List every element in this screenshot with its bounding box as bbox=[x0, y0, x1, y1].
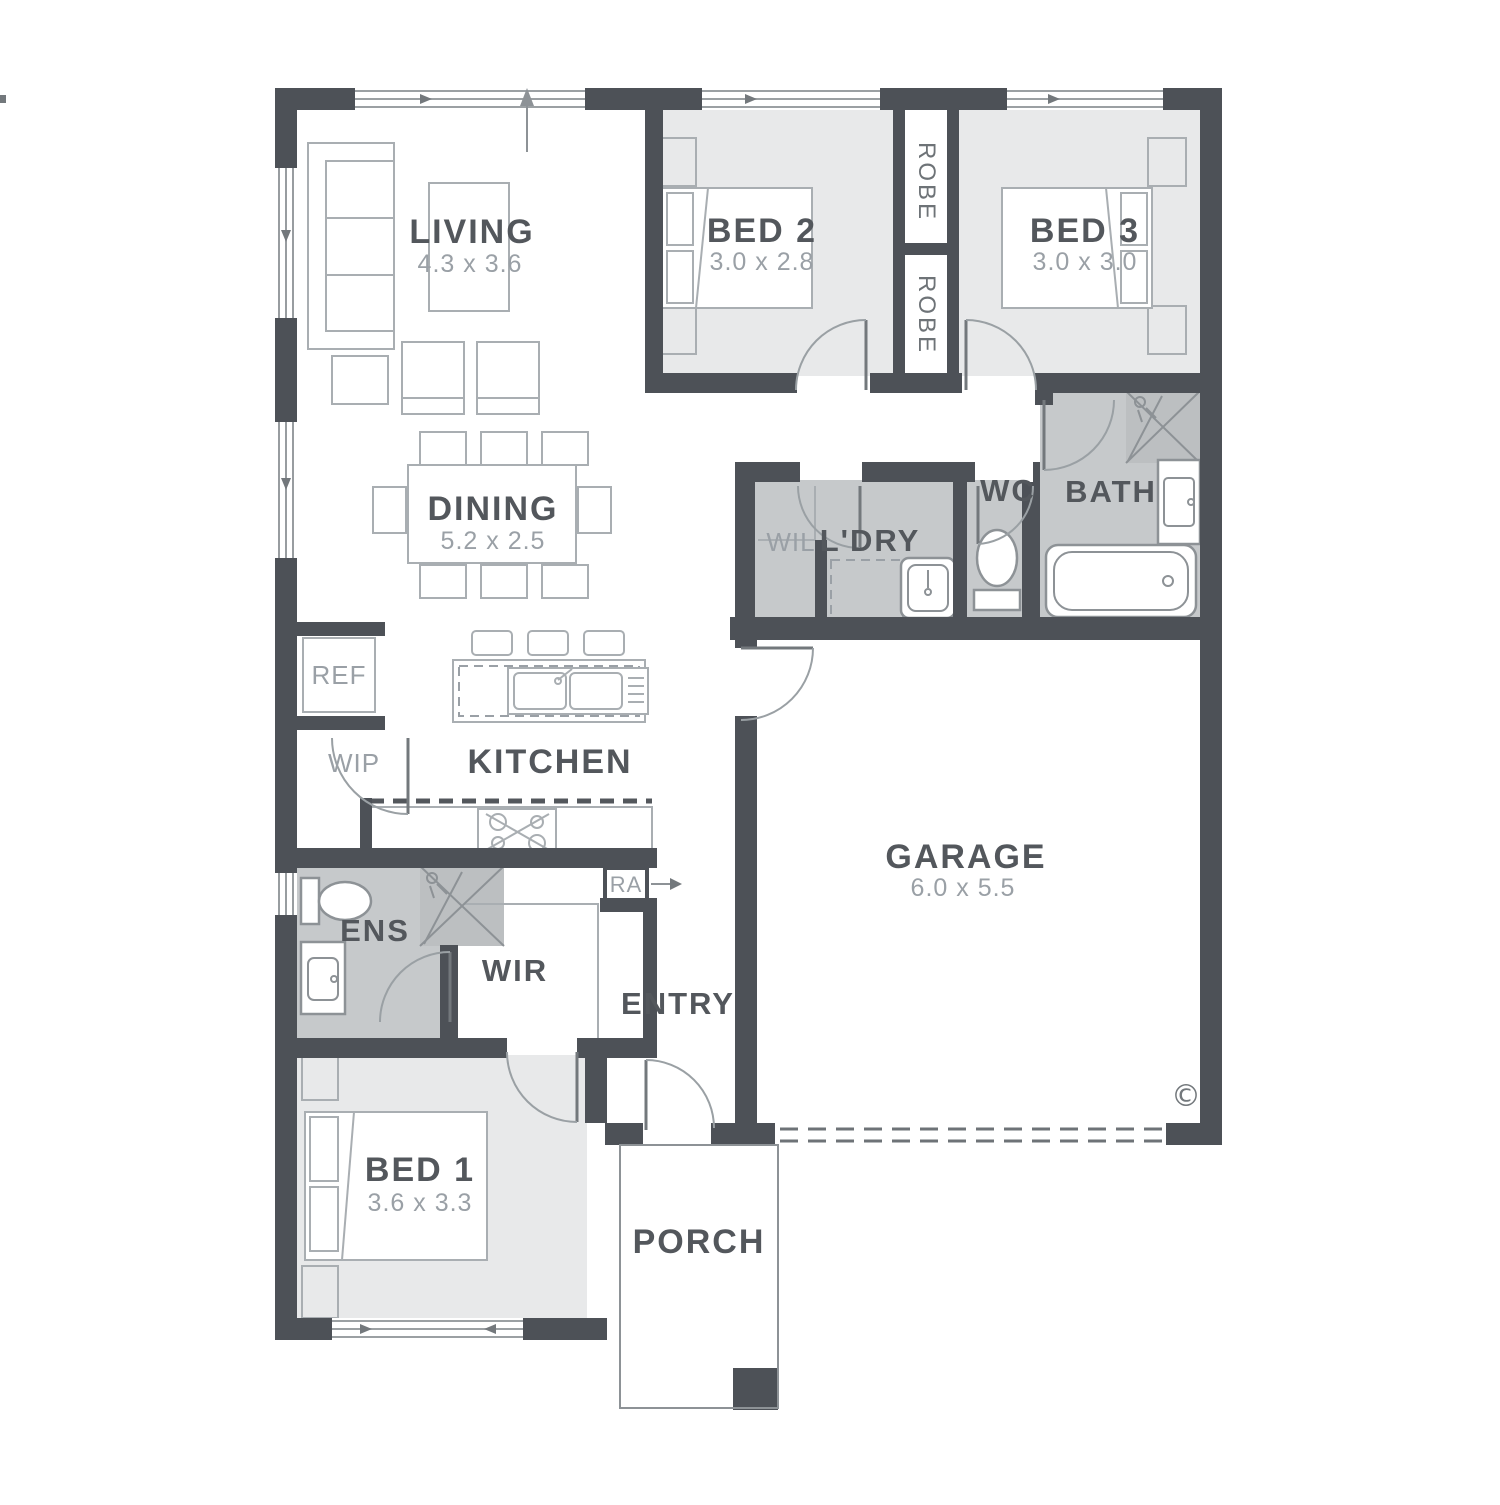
dining-chair bbox=[578, 487, 611, 533]
bed3-window bbox=[1007, 88, 1163, 110]
ottoman-1 bbox=[402, 342, 464, 414]
bed2-label: BED 2 bbox=[707, 212, 817, 250]
island-sink-unit bbox=[508, 668, 648, 714]
living-label: LIVING bbox=[409, 213, 534, 251]
garage-label: GARAGE bbox=[885, 838, 1046, 876]
dining-chair bbox=[373, 487, 406, 533]
bed1-dims: 3.6 x 3.3 bbox=[368, 1189, 473, 1217]
dining-chair bbox=[481, 432, 527, 465]
garage-panel-door bbox=[780, 1129, 1166, 1141]
dining-chair bbox=[420, 432, 466, 465]
dining-chair bbox=[420, 565, 466, 598]
dining-dims: 5.2 x 2.5 bbox=[441, 527, 546, 555]
bar-stool bbox=[528, 631, 568, 655]
dining-chair bbox=[481, 565, 527, 598]
ref-label: REF bbox=[312, 660, 367, 690]
garage-door-internal bbox=[741, 648, 813, 720]
floor-plan-canvas: LIVING 4.3 x 3.6 DINING 5.2 x 2.5 KITCHE… bbox=[0, 0, 1500, 1500]
toilet-cistern bbox=[974, 590, 1020, 610]
entry-label: ENTRY bbox=[621, 986, 735, 1021]
ra-arrow-head bbox=[670, 878, 682, 890]
dining-chair bbox=[542, 565, 588, 598]
front-entry-door bbox=[646, 1060, 714, 1130]
dining-label: DINING bbox=[428, 490, 559, 528]
wil-label: WIL bbox=[766, 527, 815, 557]
robe1-label: ROBE bbox=[913, 142, 940, 222]
laundry-label: L'DRY bbox=[820, 523, 921, 558]
living-dims: 4.3 x 3.6 bbox=[418, 250, 523, 278]
side-table bbox=[332, 356, 388, 404]
kitchen-bench bbox=[370, 807, 652, 855]
wir-label: WIR bbox=[482, 953, 548, 988]
floor-plan: LIVING 4.3 x 3.6 DINING 5.2 x 2.5 KITCHE… bbox=[0, 0, 1500, 1500]
bar-stool bbox=[472, 631, 512, 655]
porch-label: PORCH bbox=[633, 1223, 766, 1261]
bed1-window-bottom bbox=[332, 1318, 523, 1340]
ra-label: RA bbox=[610, 872, 643, 897]
wc-fixtures bbox=[974, 530, 1020, 610]
bar-stool bbox=[584, 631, 624, 655]
bed3-label: BED 3 bbox=[1030, 212, 1140, 250]
toilet-cistern bbox=[301, 878, 319, 924]
garage-dims: 6.0 x 5.5 bbox=[911, 874, 1016, 902]
bath-label: BATH bbox=[1065, 474, 1157, 509]
robe2-label: ROBE bbox=[913, 275, 940, 355]
bed3-dims: 3.0 x 3.0 bbox=[1033, 248, 1138, 276]
sofa-cushions bbox=[326, 161, 394, 331]
living-furniture bbox=[308, 143, 539, 414]
wip-label: WIP bbox=[328, 748, 380, 778]
bed2-dims: 3.0 x 2.8 bbox=[710, 248, 815, 276]
dining-chair bbox=[542, 432, 588, 465]
bed2-window bbox=[702, 88, 880, 110]
copyright-mark: © bbox=[1171, 1079, 1201, 1114]
bed1-label: BED 1 bbox=[365, 1151, 475, 1189]
dining-window-left bbox=[275, 422, 297, 558]
kitchen-label: KITCHEN bbox=[467, 743, 632, 781]
toilet-bowl bbox=[977, 530, 1017, 586]
living-window-left bbox=[275, 168, 297, 318]
ens-label: ENS bbox=[340, 913, 410, 948]
sofa bbox=[308, 143, 394, 349]
ens-window-left bbox=[275, 873, 297, 915]
wc-label: WC bbox=[980, 473, 1036, 508]
ottoman-2 bbox=[477, 342, 539, 414]
